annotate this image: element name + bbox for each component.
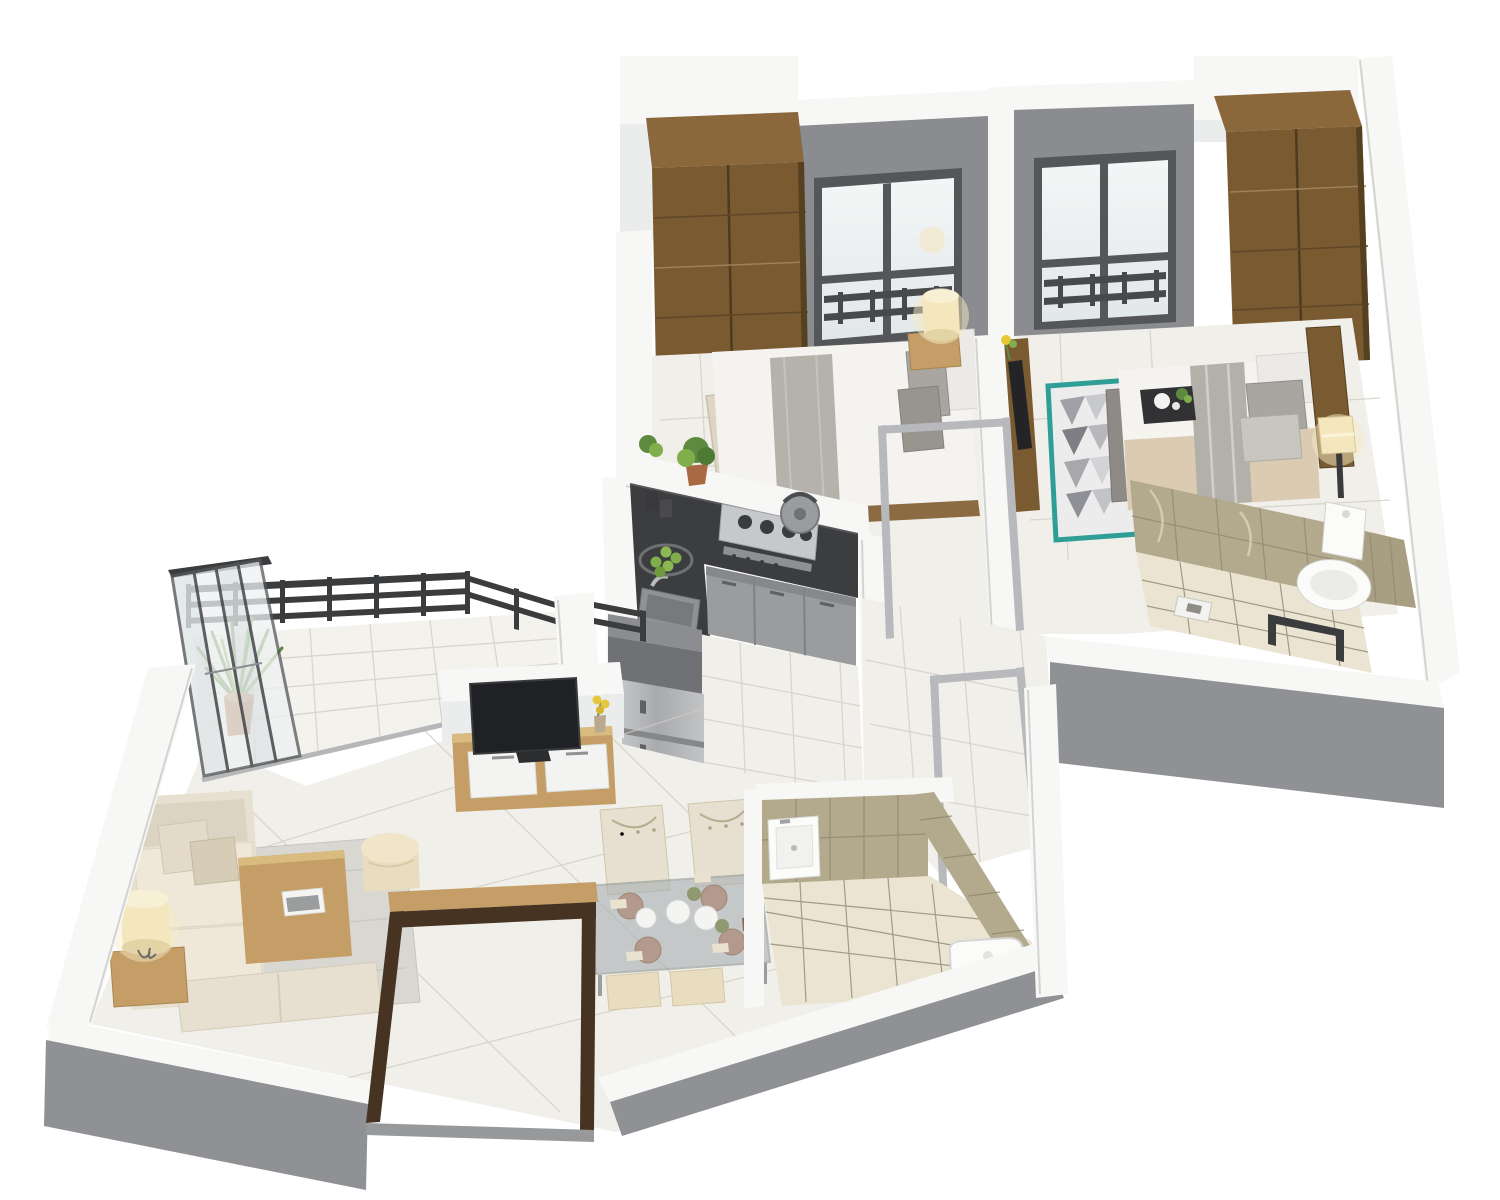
tv-area [438,662,624,812]
serving-dish [694,906,718,930]
stool-1 [606,972,661,1010]
floor-plan-render [0,0,1500,1200]
ottoman-pouf [361,833,420,892]
wardrobe-1 [646,112,808,372]
wash-basin [768,816,820,880]
serving-dish [666,900,690,924]
wall-pier [988,86,1016,346]
stool-2 [670,968,725,1006]
floor-plan-svg [0,0,1500,1200]
table-lamp-1 [913,288,969,344]
sofa-pillow-2 [190,837,239,885]
bed-1-runner [770,354,840,510]
kettle [781,494,819,533]
breakfast-tray [1140,386,1196,424]
bed-1-pillow-dark [898,386,944,452]
bath2-left-wall [744,788,764,1008]
lamp-glow-through-glass [919,227,945,253]
tv-drawer-right [544,744,609,792]
coffee-table [238,850,352,964]
door-jamb-right [580,902,596,1131]
window-2 [1034,150,1176,330]
